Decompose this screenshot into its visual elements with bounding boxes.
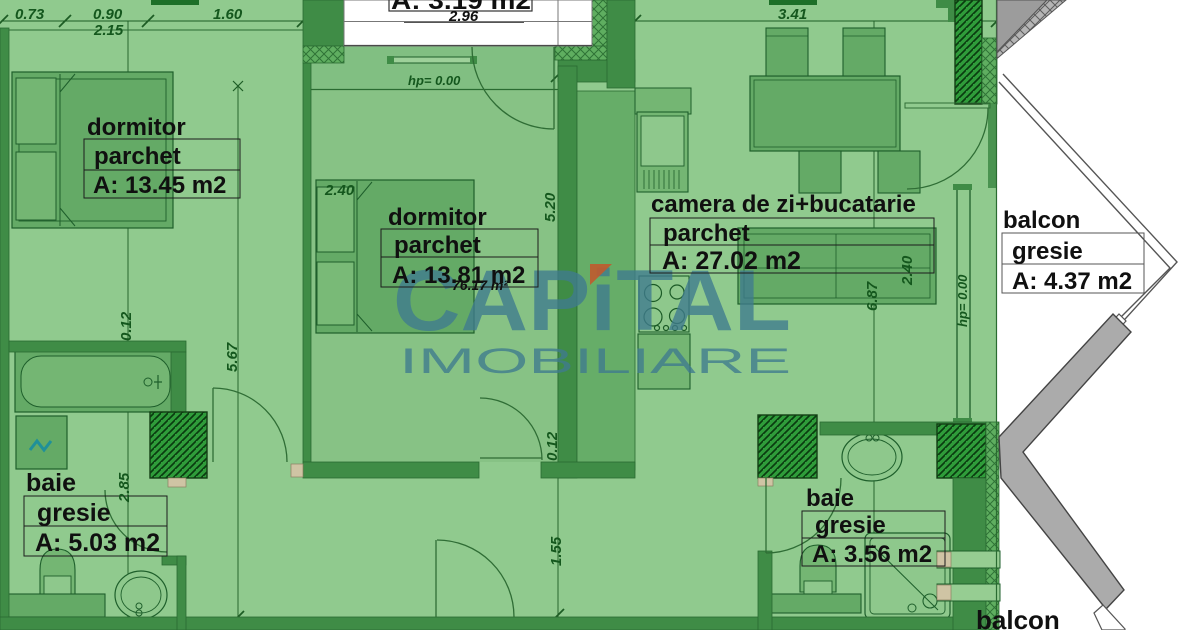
svg-text:A: 3.56 m2: A: 3.56 m2 <box>812 541 932 568</box>
svg-text:IMOBILIARE: IMOBILIARE <box>399 342 791 381</box>
svg-text:A: 5.03 m2: A: 5.03 m2 <box>35 529 160 557</box>
svg-text:gresie: gresie <box>815 512 886 539</box>
svg-text:3.41: 3.41 <box>778 6 807 23</box>
svg-text:parchet: parchet <box>663 220 750 247</box>
svg-text:gresie: gresie <box>1012 238 1083 265</box>
svg-text:6.87: 6.87 <box>864 281 881 311</box>
svg-text:balcon: balcon <box>1003 207 1080 234</box>
svg-text:1.60: 1.60 <box>213 6 243 23</box>
svg-text:76.17 m²: 76.17 m² <box>452 277 508 293</box>
svg-text:parchet: parchet <box>94 143 181 170</box>
svg-text:dormitor: dormitor <box>388 204 487 231</box>
svg-text:0.12: 0.12 <box>544 431 561 461</box>
svg-text:baie: baie <box>806 485 854 512</box>
svg-text:0.73: 0.73 <box>15 6 45 23</box>
svg-text:A: 4.37 m2: A: 4.37 m2 <box>1012 268 1132 295</box>
svg-text:A: 13.45 m2: A: 13.45 m2 <box>93 172 226 199</box>
svg-text:dormitor: dormitor <box>87 114 186 141</box>
svg-text:5.67: 5.67 <box>224 342 241 372</box>
svg-text:5.20: 5.20 <box>542 192 559 222</box>
svg-text:baie: baie <box>26 469 76 497</box>
svg-text:2.40: 2.40 <box>899 255 916 286</box>
svg-text:camera de zi+bucatarie: camera de zi+bucatarie <box>651 191 916 218</box>
svg-text:1.55: 1.55 <box>548 536 565 566</box>
svg-text:A: 27.02 m2: A: 27.02 m2 <box>662 247 801 275</box>
svg-text:hp= 0.00: hp= 0.00 <box>955 274 970 327</box>
svg-text:2.15: 2.15 <box>93 22 124 39</box>
svg-text:parchet: parchet <box>394 232 481 259</box>
svg-text:balcon: balcon <box>976 605 1060 630</box>
svg-text:0.12: 0.12 <box>118 311 135 341</box>
svg-text:hp= 0.00: hp= 0.00 <box>408 73 461 88</box>
svg-text:gresie: gresie <box>37 499 111 527</box>
svg-text:0.90: 0.90 <box>93 6 123 23</box>
svg-text:2.40: 2.40 <box>324 182 355 199</box>
svg-text:2.85: 2.85 <box>116 472 133 503</box>
